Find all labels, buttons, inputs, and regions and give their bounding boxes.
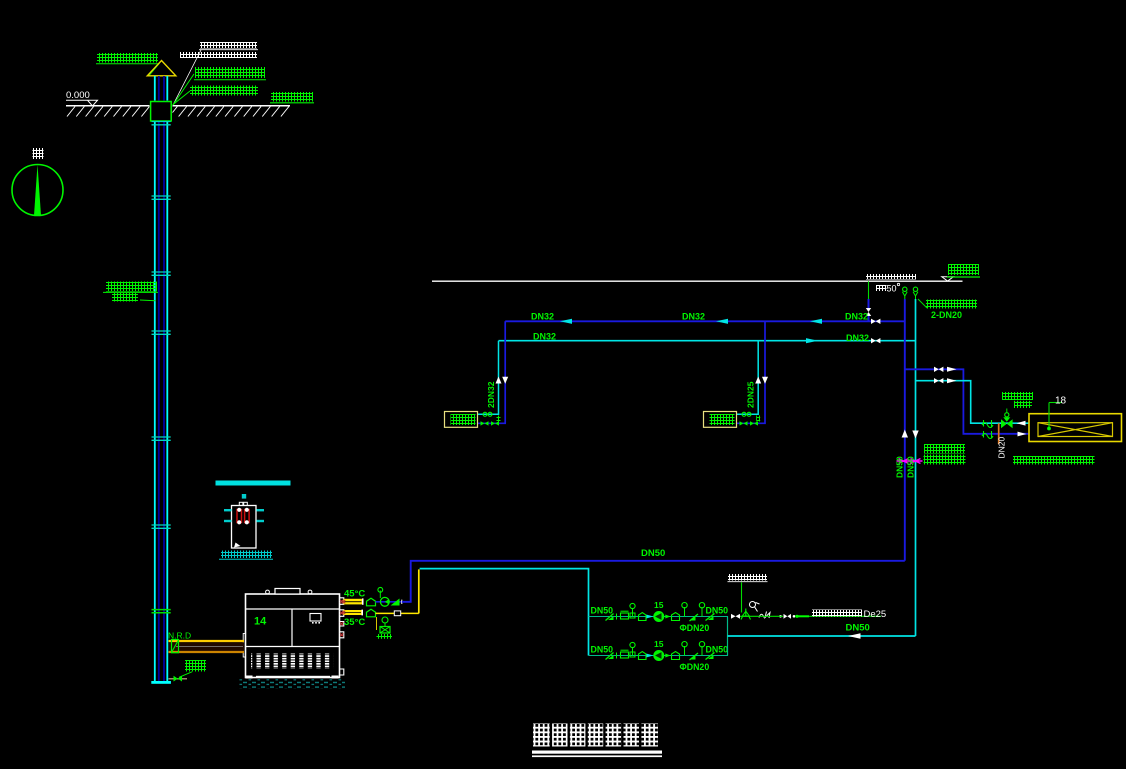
svg-text:DN50: DN50 [846,623,870,634]
svg-text:45°C: 45°C [344,589,365,600]
svg-text:15: 15 [654,600,664,610]
svg-text:0.000: 0.000 [66,90,90,101]
svg-text:De25: De25 [864,609,887,620]
svg-text:DN50: DN50 [706,644,729,654]
svg-text:ΦDN20: ΦDN20 [680,662,710,672]
svg-text:ΦDN20: ΦDN20 [680,623,710,633]
svg-text:DN20: DN20 [997,436,1007,458]
svg-text:2DN25: 2DN25 [746,381,756,408]
svg-text:DN50: DN50 [591,605,614,615]
svg-text:DN32: DN32 [845,311,868,321]
svg-text:2DN32: 2DN32 [486,381,496,408]
svg-text:DN32: DN32 [846,333,869,343]
svg-text:35°C: 35°C [344,617,365,628]
svg-text:DN32: DN32 [533,332,556,342]
svg-text:15: 15 [654,639,664,649]
svg-text:DN50: DN50 [641,548,665,559]
svg-text:DN32: DN32 [682,312,705,322]
svg-text:DN50: DN50 [895,456,905,478]
svg-text:DN50: DN50 [591,644,614,654]
svg-text:50: 50 [887,284,897,294]
svg-text:18: 18 [1055,395,1067,406]
svg-text:DN32: DN32 [531,312,554,322]
svg-text:DN50: DN50 [906,456,916,478]
svg-text:14: 14 [254,616,267,628]
svg-text:2-DN20: 2-DN20 [931,310,962,320]
svg-text:DN50: DN50 [706,605,729,615]
